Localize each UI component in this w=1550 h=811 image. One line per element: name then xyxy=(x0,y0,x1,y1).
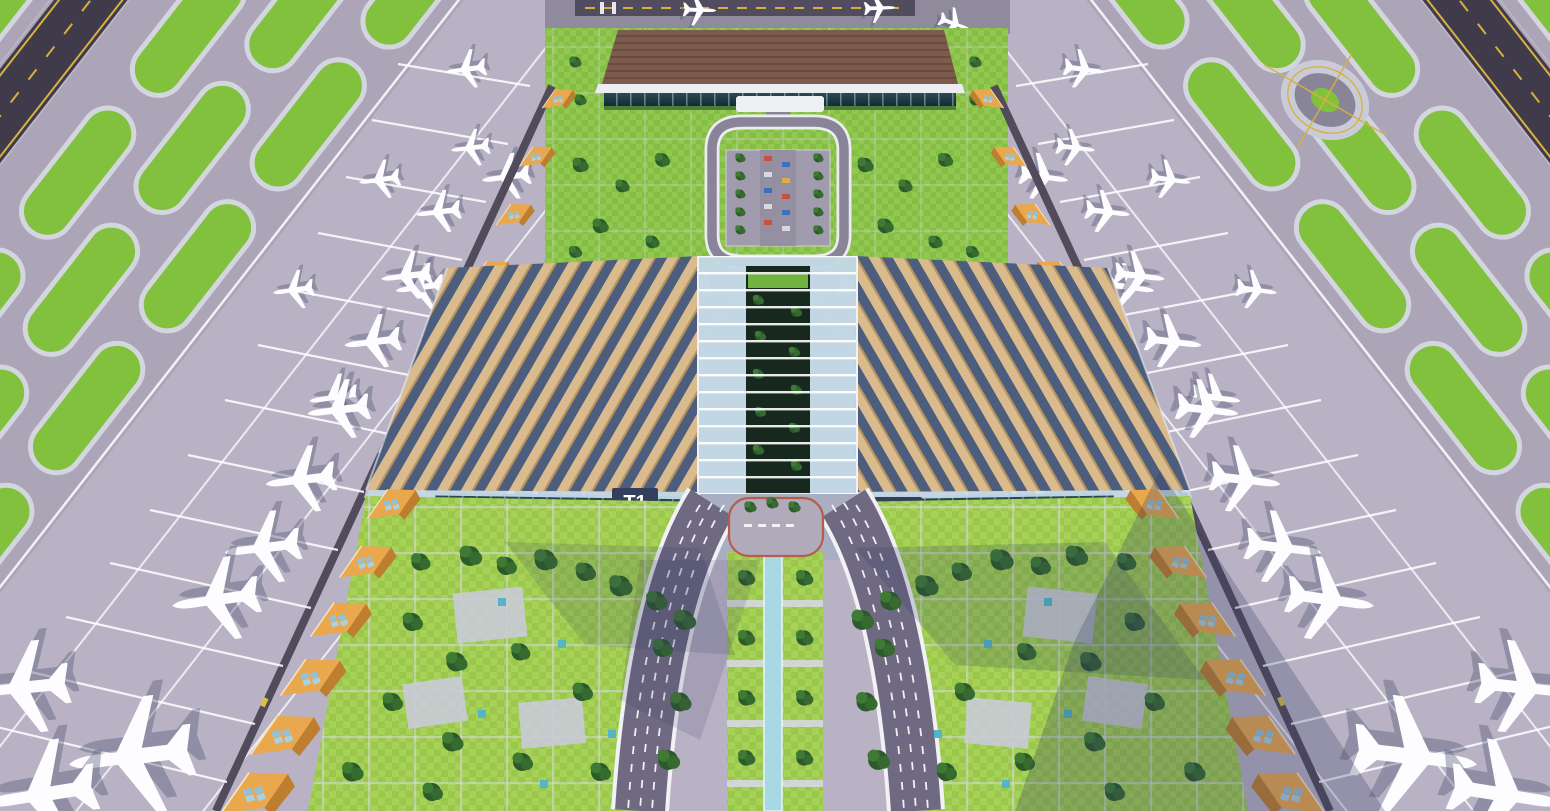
scene-canvas: T1 T2 xyxy=(0,0,1550,811)
drop-off-terminus xyxy=(729,497,823,556)
water-channel xyxy=(764,556,782,811)
landside-forecourt xyxy=(545,28,1008,270)
entrance-building-roof xyxy=(602,30,958,84)
airport-aerial-rendering: T1 T2 xyxy=(0,0,1550,811)
entrance-building-eave xyxy=(595,84,965,93)
glass-canopy xyxy=(698,256,857,502)
entrance-canopy xyxy=(736,96,824,112)
